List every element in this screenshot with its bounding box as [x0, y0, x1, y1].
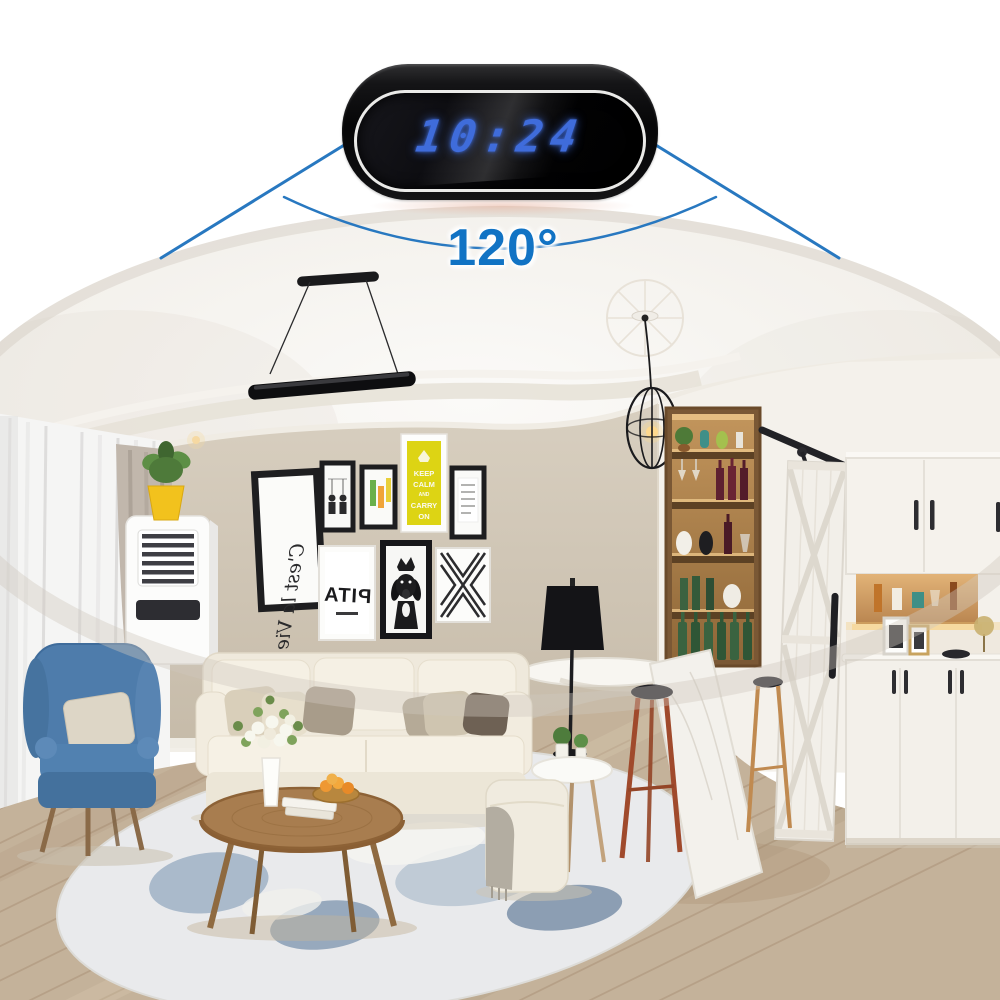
product-showcase: C'est la Vie [0, 0, 1000, 1000]
clock-display: 10:24 [354, 90, 646, 192]
view-angle-label: 120° [438, 218, 568, 278]
clock-time: 10:24 [354, 111, 646, 162]
camera-clock: 10:24 [342, 64, 658, 200]
